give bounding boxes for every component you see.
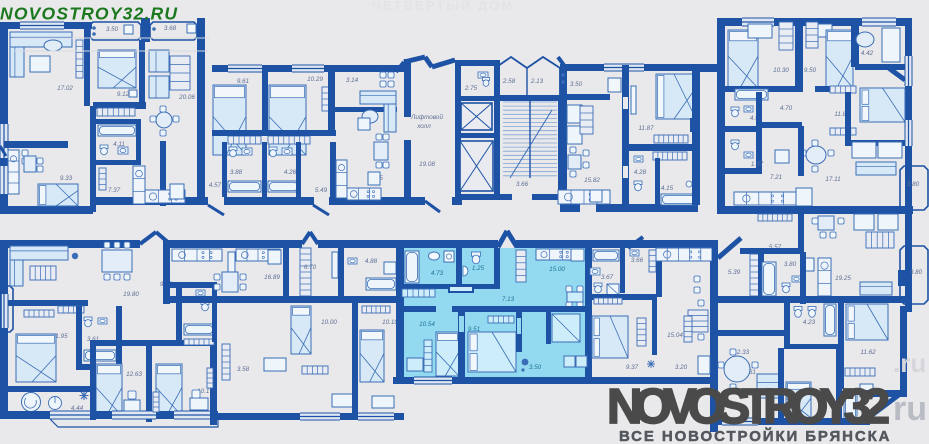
svg-text:NOVOSTROY32.RU: NOVOSTROY32.RU <box>0 4 177 24</box>
svg-text:4.70: 4.70 <box>780 105 793 112</box>
svg-text:3.80: 3.80 <box>784 261 797 268</box>
svg-text:3.50: 3.50 <box>529 364 542 371</box>
svg-text:3.66: 3.66 <box>631 257 644 264</box>
svg-text:9.61: 9.61 <box>237 78 249 85</box>
svg-text:6.70: 6.70 <box>304 264 317 271</box>
svg-text:.ru: .ru <box>893 348 926 378</box>
svg-text:15.04: 15.04 <box>667 332 683 339</box>
svg-text:10.10: 10.10 <box>382 319 398 326</box>
svg-text:3.80: 3.80 <box>910 269 923 276</box>
svg-text:9.33: 9.33 <box>60 175 73 182</box>
svg-text:19.80: 19.80 <box>123 291 139 298</box>
svg-text:Лифтовой: Лифтовой <box>410 113 443 121</box>
svg-text:20.06: 20.06 <box>178 94 195 101</box>
svg-text:2.58: 2.58 <box>502 78 516 85</box>
svg-text:15.00: 15.00 <box>549 266 565 273</box>
svg-text:3.58: 3.58 <box>237 366 250 373</box>
svg-text:9.12: 9.12 <box>117 91 130 98</box>
svg-text:ВСЕ НОВОСТРОЙКИ БРЯНСКА: ВСЕ НОВОСТРОЙКИ БРЯНСКА <box>619 427 891 444</box>
svg-text:10.30: 10.30 <box>773 67 789 74</box>
svg-text:4.42: 4.42 <box>861 50 874 57</box>
svg-text:ЧЕТВЕРТЫЙ ДОМ: ЧЕТВЕРТЫЙ ДОМ <box>372 0 514 13</box>
svg-text:3.66: 3.66 <box>516 181 529 188</box>
svg-text:17.11: 17.11 <box>825 176 840 183</box>
svg-text:9.50: 9.50 <box>804 67 817 74</box>
svg-text:15.82: 15.82 <box>584 177 600 184</box>
svg-text:4.28: 4.28 <box>634 169 647 176</box>
svg-text:10.00: 10.00 <box>321 319 337 326</box>
svg-text:11.87: 11.87 <box>638 125 654 132</box>
svg-text:10.29: 10.29 <box>307 76 323 83</box>
svg-text:1.37: 1.37 <box>751 161 764 168</box>
svg-text:3.20: 3.20 <box>675 364 688 371</box>
svg-text:3.50: 3.50 <box>570 81 583 88</box>
svg-text:4.88: 4.88 <box>365 258 378 265</box>
svg-text:4.73: 4.73 <box>431 270 444 277</box>
svg-text:4.23: 4.23 <box>803 319 816 326</box>
svg-text:4.15: 4.15 <box>661 185 674 192</box>
svg-text:3.50: 3.50 <box>106 26 119 33</box>
svg-text:3.88: 3.88 <box>230 169 243 176</box>
svg-text:4.57: 4.57 <box>209 182 222 189</box>
svg-text:19.25: 19.25 <box>835 275 851 282</box>
svg-text:17.02: 17.02 <box>57 85 73 92</box>
svg-text:5.39: 5.39 <box>728 269 741 276</box>
svg-text:холл: холл <box>416 123 431 130</box>
svg-text:7.13: 7.13 <box>502 296 515 303</box>
svg-text:3.80: 3.80 <box>907 181 920 188</box>
svg-text:9.37: 9.37 <box>626 364 639 371</box>
svg-text:12.63: 12.63 <box>126 371 142 378</box>
svg-text:11.62: 11.62 <box>860 349 876 356</box>
svg-text:2.75: 2.75 <box>464 85 478 92</box>
svg-text:1.25: 1.25 <box>472 265 485 272</box>
svg-text:19.08: 19.08 <box>419 161 435 168</box>
svg-text:3.68: 3.68 <box>164 25 177 32</box>
svg-text:NOVOSTROY32: NOVOSTROY32 <box>607 380 890 434</box>
svg-text:4.26: 4.26 <box>284 169 297 176</box>
svg-text:16.89: 16.89 <box>264 274 280 281</box>
svg-text:ru: ru <box>893 390 927 428</box>
svg-text:7.21: 7.21 <box>770 174 782 181</box>
svg-text:2.33: 2.33 <box>736 349 750 356</box>
svg-text:5.49: 5.49 <box>315 187 328 194</box>
svg-text:10.54: 10.54 <box>419 321 435 328</box>
svg-text:3.67: 3.67 <box>601 274 614 281</box>
svg-text:2.13: 2.13 <box>530 78 544 85</box>
svg-text:3.14: 3.14 <box>346 77 359 84</box>
svg-text:7.37: 7.37 <box>108 187 121 194</box>
